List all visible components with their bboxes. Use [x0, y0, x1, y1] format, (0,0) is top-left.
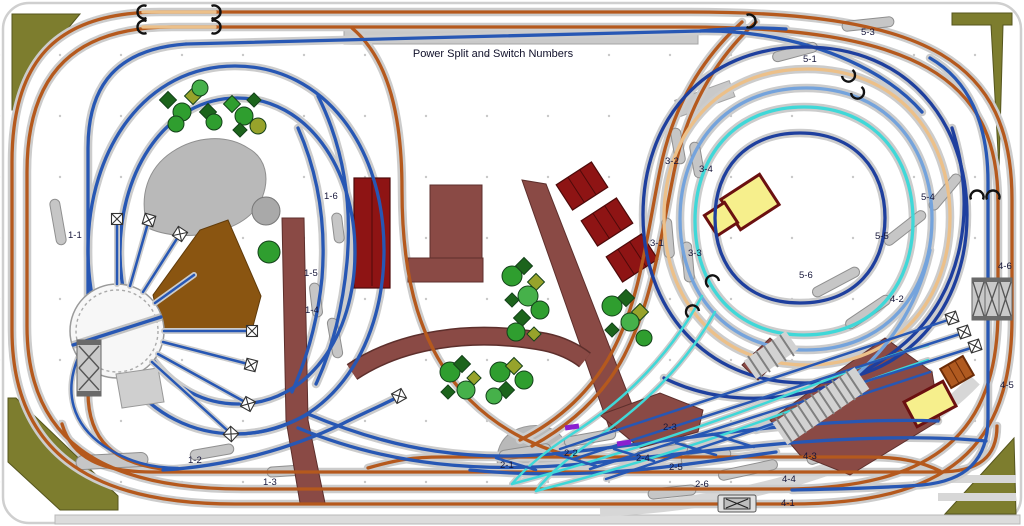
- truss-bridge-left[interactable]: [77, 340, 101, 396]
- switch-label-2-3: 2-3: [663, 422, 677, 433]
- switch-label-4-5: 4-5: [1000, 380, 1014, 391]
- plan-title: Power Split and Switch Numbers: [413, 48, 574, 60]
- track-plan-canvas[interactable]: 1-11-21-31-41-51-62-12-22-32-42-52-63-13…: [0, 0, 1024, 526]
- grade-crossing[interactable]: [718, 495, 756, 512]
- switch-label-2-6: 2-6: [695, 479, 709, 490]
- switch-label-4-6: 4-6: [998, 261, 1012, 272]
- switch-label-4-1: 4-1: [781, 498, 795, 509]
- switch-label-1-1: 1-1: [68, 230, 82, 241]
- switch-label-5-5: 5-5: [875, 231, 889, 242]
- switch-label-4-2: 4-2: [890, 294, 904, 305]
- buffer-stop-icon[interactable]: [142, 213, 156, 227]
- switch-label-2-4: 2-4: [636, 453, 650, 464]
- buffer-stop-icon[interactable]: [112, 214, 123, 225]
- switch-label-3-4: 3-4: [699, 164, 713, 175]
- switch-label-3-1: 3-1: [650, 238, 664, 249]
- switch-label-4-3: 4-3: [803, 451, 817, 462]
- front-fascia-bar: [55, 515, 1020, 524]
- switch-label-5-3: 5-3: [861, 27, 875, 38]
- switch-label-2-5: 2-5: [669, 462, 683, 473]
- switch-label-5-6: 5-6: [799, 270, 813, 281]
- tree-icon[interactable]: [258, 241, 280, 263]
- switch-label-3-3: 3-3: [688, 248, 702, 259]
- buffer-stop-icon[interactable]: [244, 358, 257, 371]
- water-tower[interactable]: [252, 197, 280, 225]
- truss-bridge-right[interactable]: [972, 278, 1012, 320]
- switch-label-1-6: 1-6: [324, 191, 338, 202]
- switch-label-2-2: 2-2: [564, 448, 578, 459]
- layout-drawing: 1-11-21-31-41-51-62-12-22-32-42-52-63-13…: [0, 0, 1024, 526]
- switch-label-5-4: 5-4: [921, 192, 935, 203]
- switch-label-1-4: 1-4: [305, 305, 319, 316]
- turntable-shed[interactable]: [116, 368, 164, 408]
- switch-label-1-2: 1-2: [188, 455, 202, 466]
- switch-label-1-3: 1-3: [263, 477, 277, 488]
- building-annex[interactable]: [408, 258, 483, 282]
- switch-label-5-1: 5-1: [803, 54, 817, 65]
- switch-label-3-2: 3-2: [665, 156, 679, 167]
- buffer-stop-icon[interactable]: [247, 326, 258, 337]
- switch-label-2-1: 2-1: [500, 460, 514, 471]
- switch-label-1-5: 1-5: [304, 268, 318, 279]
- switch-label-4-4: 4-4: [782, 474, 796, 485]
